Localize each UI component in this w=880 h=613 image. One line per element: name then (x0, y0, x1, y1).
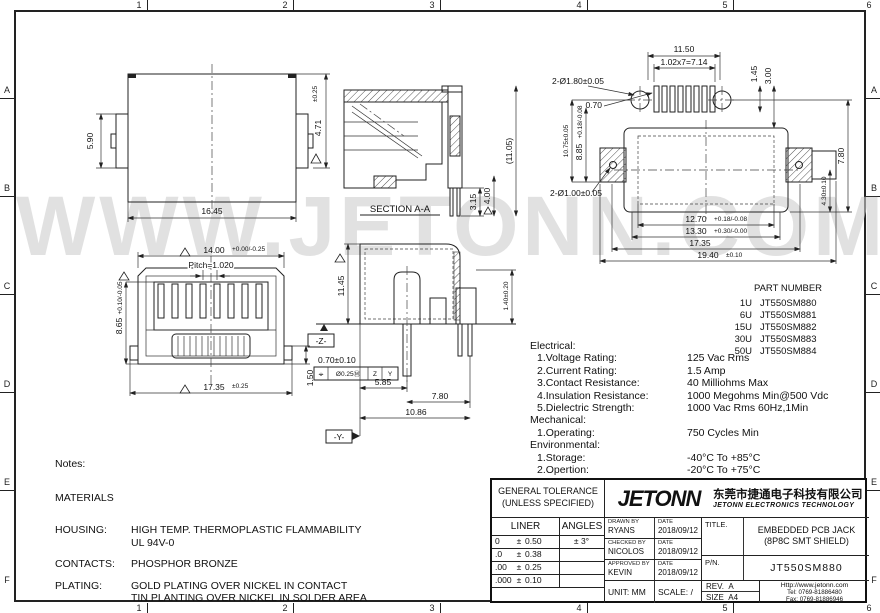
unit-scale-row: UNIT: MM SCALE: / (605, 581, 702, 603)
company-banner: JETONN 东莞市捷通电子科技有限公司 JETONN ELECTRONICS … (605, 480, 869, 518)
spec-row: 2.Current Rating:1.5 Amp (528, 365, 880, 377)
zone-row-label: E (1, 477, 13, 487)
zone-tick (0, 490, 14, 491)
qty-cell: 1U (718, 298, 752, 310)
spec-label: 1.Voltage Rating: (537, 352, 687, 364)
zone-col-label: 5 (719, 603, 731, 613)
datum-triangle (352, 432, 360, 440)
front-contact-body (130, 256, 292, 386)
zone-col-label: 1 (133, 0, 145, 10)
angle-tolerance (559, 575, 603, 587)
plus-minus: ± (513, 575, 525, 587)
material-label: HOUSING: (55, 524, 131, 549)
drawn-by-name: RYANS (608, 526, 654, 535)
revision-triangle (119, 272, 129, 280)
zone-tick (293, 0, 294, 10)
pn-cell: JT550SM880 (760, 298, 817, 310)
tolerance-value: 0.50 (525, 536, 559, 548)
drawing-sheet: 1 2 3 4 5 6 1 2 3 4 5 6 A B C D E F A B … (0, 0, 880, 613)
section-dimensions: 3.15 4.00 (11.05) (461, 86, 516, 216)
dim-text: 8.85 (574, 143, 584, 160)
datum-triangle (320, 324, 328, 331)
table-row: 6UJT550SM881 (718, 310, 858, 322)
mechanical-title: Mechanical: (530, 414, 880, 426)
spec-label: 1.Storage: (537, 452, 687, 464)
spec-row: 1.Voltage Rating:125 Vac Rms (528, 352, 880, 364)
checked-by-name: NICOLOS (608, 547, 654, 556)
tolerance-decimal: .00 (492, 562, 513, 574)
dim-text: 4.30±0.10 (821, 176, 828, 205)
footprint-view-drawing: 11.50 1.02x7=7.14 0.70 2-Ø1.80±0.05 1.45… (548, 36, 880, 278)
dim-text: 3.00 (763, 67, 773, 84)
material-line: PHOSPHOR BRONZE (131, 558, 238, 571)
zone-tick (0, 196, 14, 197)
fax: Fax: 0769-81886946 (760, 597, 869, 604)
front-contact-view-drawing: 14.00 +0.00/-0.25 Pitch=1.020 8.65 +0.10… (80, 226, 320, 431)
dim-text: 10.86 (405, 407, 427, 417)
tolerance-decimal: 0 (492, 536, 513, 548)
side-view-drawing: 11.45 1.40±0.20 -Z- 0.70±0.10 ⌖ Ø0.25Ⓜ Z… (290, 230, 535, 450)
scale-value: / (691, 587, 693, 597)
spec-row: 1.Storage:-40°C To +85°C (528, 452, 880, 464)
zone-col-label: 3 (426, 0, 438, 10)
dim-text: 2-Ø1.00±0.05 (550, 188, 602, 198)
qty-cell: 15U (718, 322, 752, 334)
zone-tick (440, 0, 441, 10)
section-body (344, 86, 462, 216)
zone-row-label: F (1, 575, 13, 585)
drawing-title-row: TITLE. EMBEDDED PCB JACK (8P8C SMT SHIEL… (702, 518, 869, 556)
zone-row-label: C (868, 281, 880, 291)
material-row: CONTACTS: PHOSPHOR BRONZE (55, 558, 475, 571)
dim-text: 5.90 (85, 132, 95, 149)
tolerance-row: 0±0.50± 3° (492, 536, 605, 549)
zone-col-label: 2 (279, 0, 291, 10)
material-line: GOLD PLATING OVER NICKEL IN CONTACT (131, 580, 367, 593)
table-row: 15UJT550SM882 (718, 322, 858, 334)
dim-text: 14.00 (203, 245, 225, 255)
tolerance-header-line2: (UNLESS SPECIFIED) (492, 497, 604, 509)
zone-col-label: 5 (719, 0, 731, 10)
front-view-body (111, 64, 313, 214)
spec-label: 2.Current Rating: (537, 365, 687, 377)
company-name-english: JETONN ELECTRONICS TECHNOLOGY (713, 502, 863, 509)
zone-row-label: D (1, 379, 13, 389)
spec-label: 3.Contact Resistance: (537, 377, 687, 389)
approved-by-name: KEVIN (608, 568, 654, 577)
approved-by-label: APPROVED BY (608, 561, 654, 568)
spec-row: 4.Insulation Resistance:1000 Megohms Min… (528, 390, 880, 402)
dim-tolerance: ±0.25 (232, 383, 249, 390)
zone-row-label: C (1, 281, 13, 291)
angle-tolerance (559, 562, 603, 574)
material-line: HIGH TEMP. THERMOPLASTIC FLAMMABILITY (131, 524, 361, 537)
fcf-symbol: ⌖ (319, 369, 324, 379)
dim-text: 17.35 (203, 382, 225, 392)
plus-minus: ± (513, 549, 525, 561)
plus-minus: ± (513, 562, 525, 574)
tolerance-value: 0.25 (525, 562, 559, 574)
side-dimensions: 11.45 1.40±0.20 -Z- 0.70±0.10 ⌖ Ø0.25Ⓜ Z… (308, 244, 516, 443)
dim-text: Pitch=1.020 (188, 260, 233, 270)
section-view-drawing: 3.15 4.00 (11.05) SECTION A-A (330, 76, 535, 221)
dim-text: 1.40±0.20 (503, 281, 510, 310)
zone-col-label: 4 (573, 603, 585, 613)
dim-text: 19.40 (697, 250, 719, 260)
checked-date: 2018/09/12 (658, 547, 701, 556)
electrical-title: Electrical: (530, 340, 880, 352)
dim-text: 3.15 (468, 193, 478, 210)
dim-text: 0.70 (585, 100, 602, 110)
dim-tolerance: +0.18/-0.08 (714, 216, 747, 223)
spec-value: 1.5 Amp (687, 365, 726, 377)
pn-value: JT550SM880 (744, 556, 869, 580)
notes-block: Notes: MATERIALS HOUSING: HIGH TEMP. THE… (55, 458, 475, 613)
rev-label: REV. (706, 582, 724, 591)
dim-text: 7.80 (432, 391, 449, 401)
zone-tick (866, 294, 880, 295)
spec-row: 2.Opertion:-20°C To +75°C (528, 464, 880, 476)
spec-row: 3.Contact Resistance:40 Milliohms Max (528, 377, 880, 389)
part-number-row: P/N. JT550SM880 (702, 556, 869, 581)
spec-value: 40 Milliohms Max (687, 377, 768, 389)
zone-col-label: 6 (863, 0, 875, 10)
dim-tolerance: ±0.10 (726, 252, 743, 259)
unit-value: MM (632, 587, 646, 597)
title-label: TITLE. (702, 518, 744, 555)
datum-label: -Z- (316, 336, 327, 346)
part-number-header: PART NUMBER (718, 283, 858, 294)
dim-text: 2-Ø1.80±0.05 (552, 76, 604, 86)
rev-value: A (728, 582, 733, 591)
datum-label: -Y- (334, 432, 345, 442)
spec-value: 1000 Megohms Min@500 Vdc (687, 390, 828, 402)
tolerance-columns: LINER ANGLES (492, 518, 605, 536)
spec-label: 1.Operating: (537, 427, 687, 439)
zone-row-label: A (1, 85, 13, 95)
company-name-chinese: 东莞市捷通电子科技有限公司 (713, 488, 863, 502)
table-row: 1UJT550SM880 (718, 298, 858, 310)
contact-info-box: Http://www.jetonn.com Tel: 0769-81886480… (760, 581, 869, 603)
qty-cell: 6U (718, 310, 752, 322)
zone-tick (0, 98, 14, 99)
angle-tolerance: ± 3° (559, 536, 603, 548)
specifications-block: Electrical: 1.Voltage Rating:125 Vac Rms… (528, 340, 880, 491)
drawn-by-row: DRAWN BYRYANS DATE2018/09/12 (605, 518, 702, 539)
rev-size-box: REV. A SIZE A4 (702, 581, 760, 603)
front-view-drawing: 16.45 5.90 4.71 ±0.25 (80, 50, 335, 240)
tolerance-value: 0.10 (525, 575, 559, 587)
tolerance-row: .0±0.38 (492, 549, 605, 562)
dim-text: 8.65 (114, 317, 124, 334)
zone-tick (587, 603, 588, 613)
plus-minus: ± (513, 536, 525, 548)
spec-value: -20°C To +75°C (687, 464, 760, 476)
tolerance-header: GENERAL TOLERANCE (UNLESS SPECIFIED) (492, 480, 605, 518)
zone-row-label: F (868, 575, 880, 585)
material-value: GOLD PLATING OVER NICKEL IN CONTACTTIN P… (131, 580, 367, 605)
angle-tolerance (559, 549, 603, 561)
dim-text: (11.05) (504, 138, 514, 164)
zone-tick (0, 294, 14, 295)
spec-label: 5.Dielectric Strength: (537, 402, 687, 414)
tolerance-decimal: .000 (492, 575, 513, 587)
material-line: TIN PLANTING OVER NICKEL IN SOLDER AREA (131, 592, 367, 605)
unit-label: UNIT: (608, 587, 629, 597)
approved-date: 2018/09/12 (658, 568, 701, 577)
zone-col-label: 6 (863, 603, 875, 613)
dim-text: 5.85 (375, 377, 392, 387)
company-name: 东莞市捷通电子科技有限公司 JETONN ELECTRONICS TECHNOL… (713, 488, 863, 509)
front-view-dimensions: 16.45 5.90 4.71 ±0.25 (85, 74, 330, 222)
size-value: A4 (728, 593, 738, 602)
dim-text: 16.45 (201, 206, 223, 216)
zone-row-label: B (1, 183, 13, 193)
dim-text: 0.70±0.10 (318, 355, 356, 365)
material-value: HIGH TEMP. THERMOPLASTIC FLAMMABILITYUL … (131, 524, 361, 549)
drawing-title-line2: (8P8C SMT SHIELD) (744, 536, 869, 547)
dim-text: 4.71 (313, 119, 323, 136)
dim-text: 7.80 (836, 147, 846, 164)
title-block: GENERAL TOLERANCE (UNLESS SPECIFIED) LIN… (490, 478, 867, 603)
tolerance-header-line1: GENERAL TOLERANCE (492, 485, 604, 497)
drawing-title-line1: EMBEDDED PCB JACK (744, 525, 869, 536)
zone-tick (733, 0, 734, 10)
scale-label: SCALE: (658, 587, 688, 597)
spec-row: 1.Operating:750 Cycles Min (528, 427, 880, 439)
size-label: SIZE (706, 593, 724, 602)
dim-tolerance: +0.30/-0.00 (714, 228, 747, 235)
dim-text: 4.00 (482, 187, 492, 204)
footprint-body (600, 120, 836, 220)
dim-text: 11.45 (336, 275, 346, 296)
dim-tolerance: +0.18/-0.08 (577, 105, 584, 138)
revision-triangle (335, 254, 345, 262)
dim-tolerance: ±0.25 (312, 86, 319, 103)
revision-triangle (180, 385, 190, 393)
environmental-title: Environmental: (530, 439, 880, 451)
revision-triangle (484, 207, 492, 214)
zone-tick (147, 0, 148, 10)
liner-column-header: LINER (492, 518, 560, 535)
tolerance-decimal: .0 (492, 549, 513, 561)
dim-text: 12.70 (685, 214, 707, 224)
material-label: PLATING: (55, 580, 131, 605)
section-label: SECTION A-A (370, 204, 431, 215)
zone-col-label: 4 (573, 0, 585, 10)
revision-triangle (180, 248, 190, 256)
approved-by-row: APPROVED BYKEVIN DATE2018/09/12 (605, 560, 702, 581)
notes-title: Notes: (55, 458, 475, 470)
dim-text: 1.45 (749, 65, 759, 82)
materials-title: MATERIALS (55, 492, 475, 504)
tolerance-row: .00±0.25 (492, 562, 605, 575)
material-line: UL 94V-0 (131, 537, 361, 550)
spec-row: 5.Dielectric Strength:1000 Vac Rms 60Hz,… (528, 402, 880, 414)
zone-tick (587, 0, 588, 10)
checked-by-row: CHECKED BYNICOLOS DATE2018/09/12 (605, 539, 702, 560)
dim-text: 13.30 (685, 226, 707, 236)
drawn-date: 2018/09/12 (658, 526, 701, 535)
dim-text: 17.35 (689, 238, 711, 248)
footprint-pads (626, 86, 736, 114)
tolerance-empty-cell (492, 588, 605, 603)
spec-value: 125 Vac Rms (687, 352, 749, 364)
dim-text: 11.50 (674, 44, 695, 54)
spec-value: 1000 Vac Rms 60Hz,1Min (687, 402, 808, 414)
revision-triangle (311, 154, 321, 163)
spec-value: 750 Cycles Min (687, 427, 759, 439)
jetonn-logo: JETONN (605, 486, 713, 512)
spec-label: 2.Opertion: (537, 464, 687, 476)
spec-value: -40°C To +85°C (687, 452, 760, 464)
dim-tolerance: +0.00/-0.25 (232, 246, 265, 253)
fcf-tolerance: Ø0.25Ⓜ (336, 370, 361, 378)
material-label: CONTACTS: (55, 558, 131, 571)
material-row: HOUSING: HIGH TEMP. THERMOPLASTIC FLAMMA… (55, 524, 475, 549)
zone-tick (0, 392, 14, 393)
tolerance-value: 0.38 (525, 549, 559, 561)
pn-cell: JT550SM881 (760, 310, 817, 322)
pn-label: P/N. (702, 556, 744, 580)
angles-column-header: ANGLES (560, 518, 604, 535)
dim-text: 10.75±0.05 (563, 124, 570, 157)
material-row: PLATING: GOLD PLATING OVER NICKEL IN CON… (55, 580, 475, 605)
material-value: PHOSPHOR BRONZE (131, 558, 238, 571)
dim-tolerance: +0.10/-0.05 (117, 281, 124, 314)
spec-label: 4.Insulation Resistance: (537, 390, 687, 402)
pn-cell: JT550SM882 (760, 322, 817, 334)
dim-text: 1.02x7=7.14 (660, 57, 707, 67)
zone-tick (733, 603, 734, 613)
tolerance-row: .000±0.10 (492, 575, 605, 588)
front-contact-dimensions: 14.00 +0.00/-0.25 Pitch=1.020 8.65 +0.10… (114, 245, 315, 396)
